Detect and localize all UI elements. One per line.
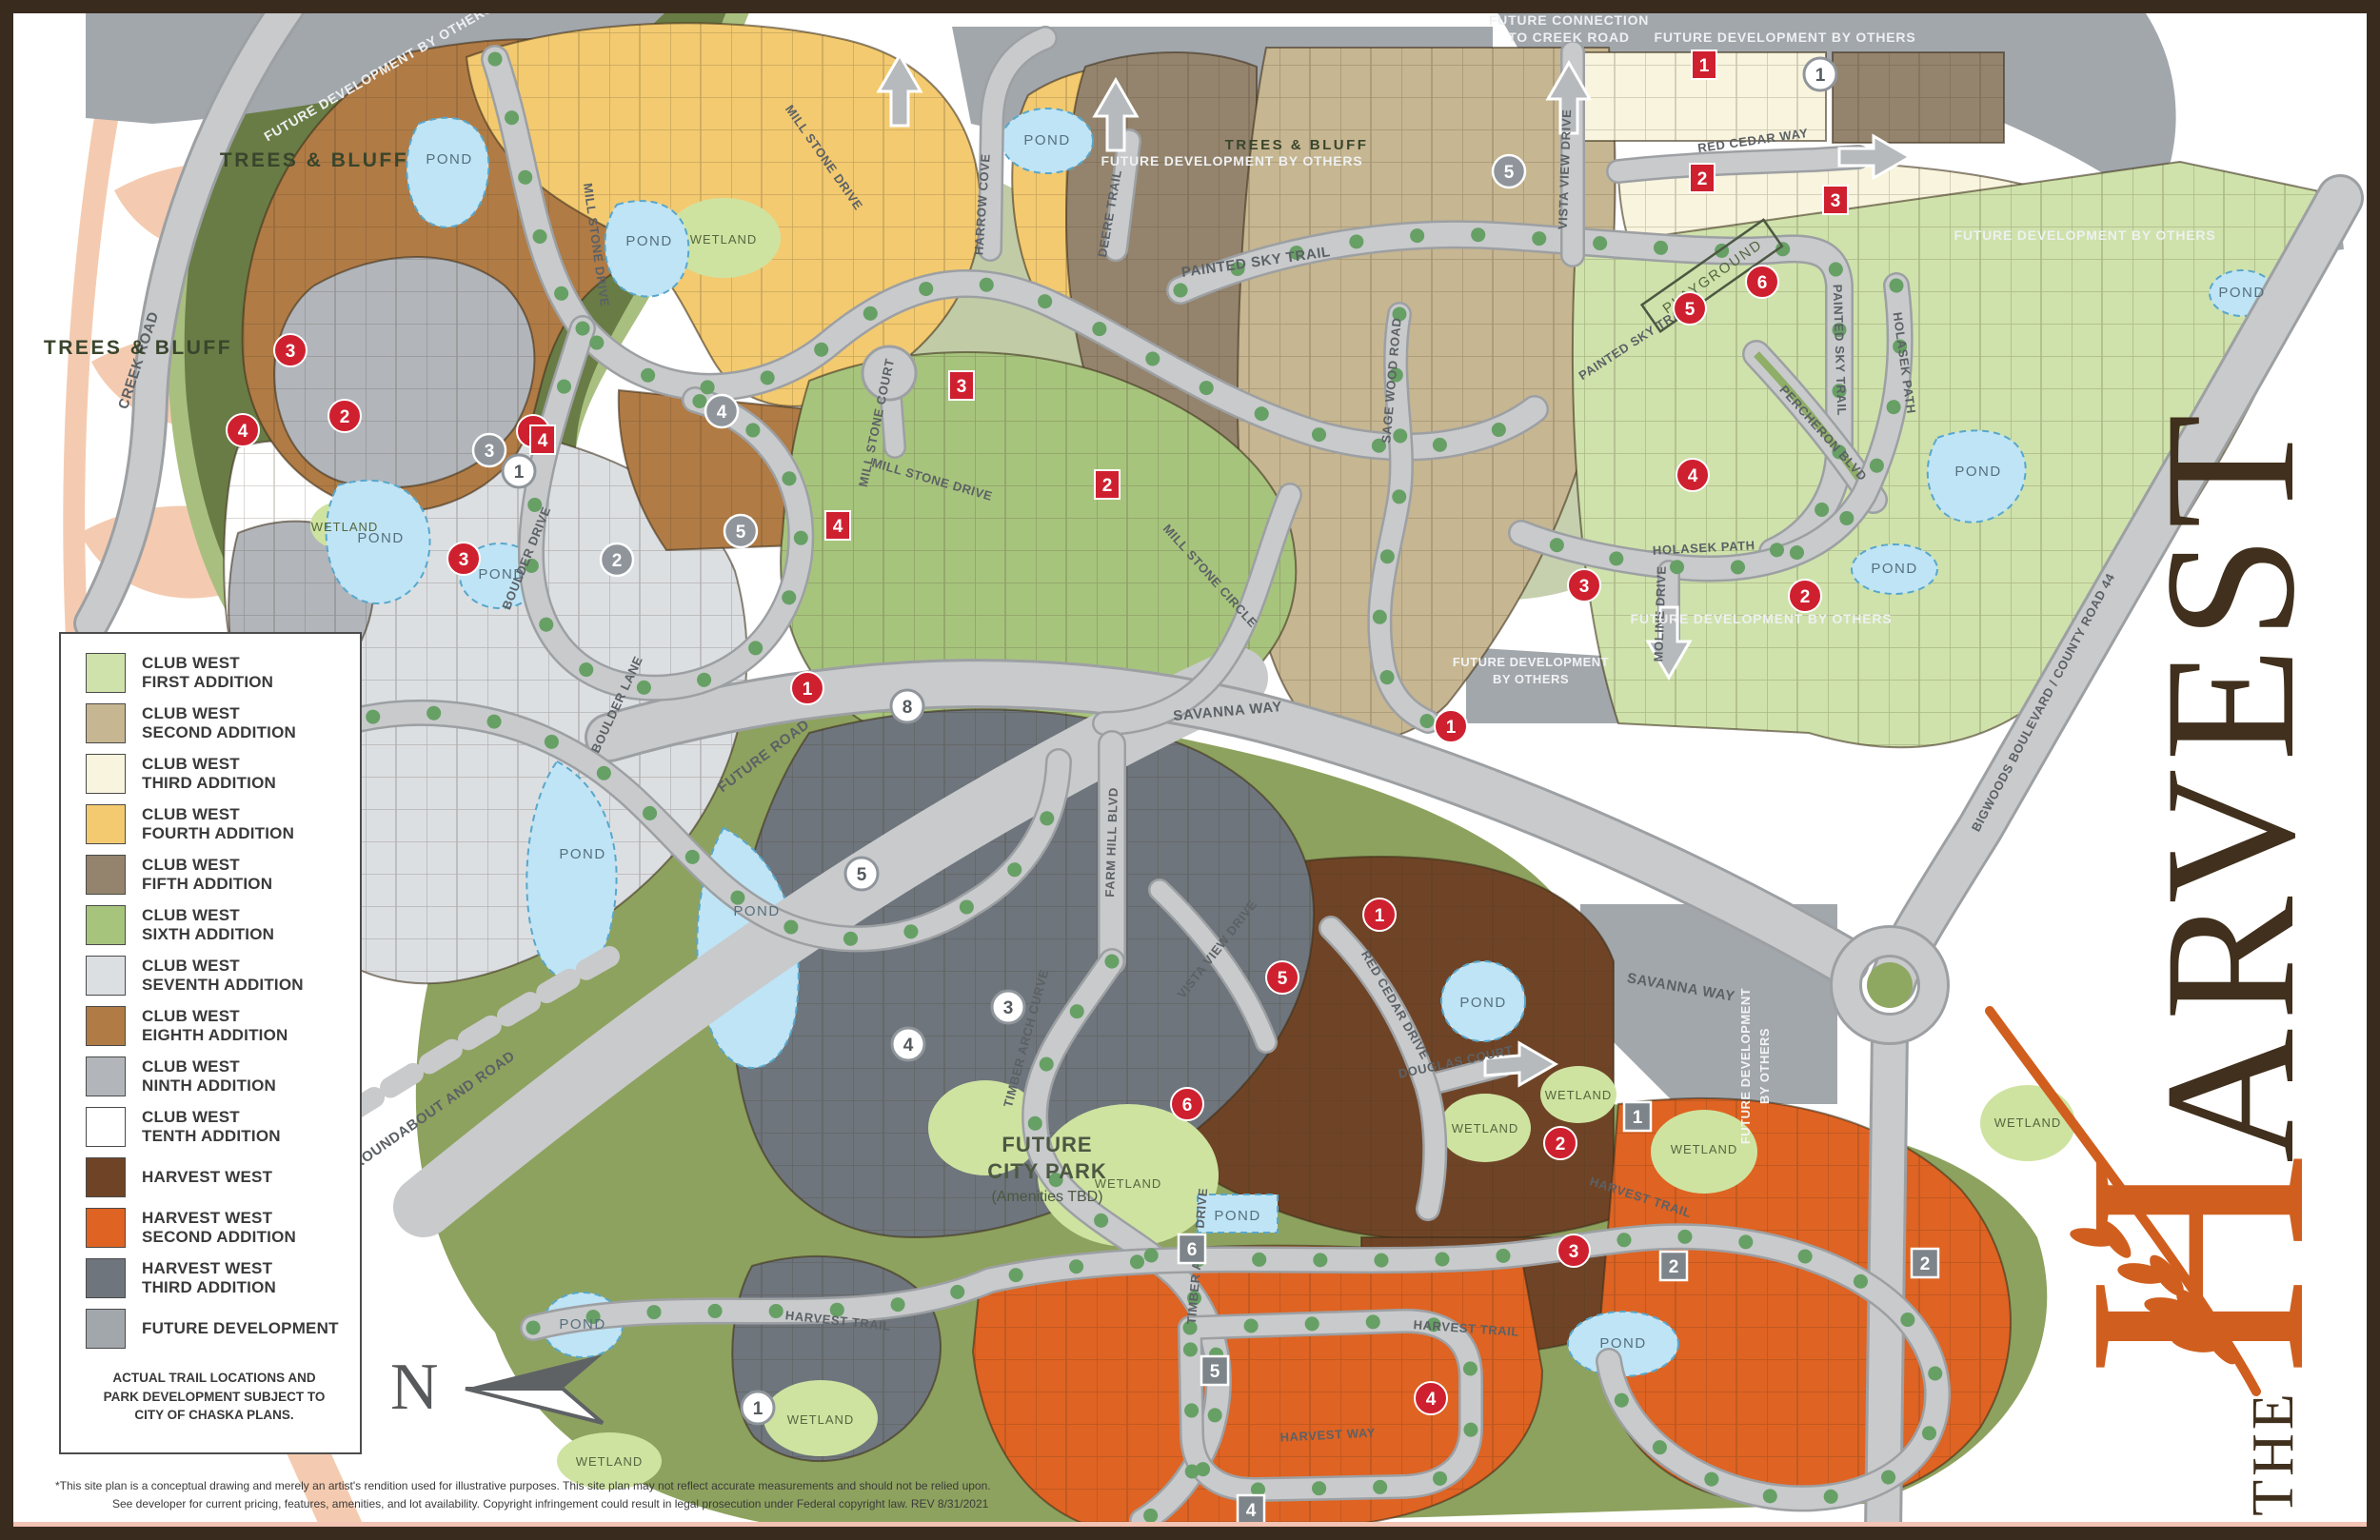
svg-text:BY OTHERS: BY OTHERS: [1757, 1028, 1772, 1104]
svg-text:3: 3: [1579, 577, 1590, 597]
area-label: WETLAND: [1994, 1116, 2062, 1130]
legend-swatch: [86, 1258, 126, 1298]
logo-the: THE: [2240, 1390, 2308, 1516]
legend-item: HARVEST WESTSECOND ADDITION: [86, 1208, 343, 1248]
area-label: POND: [357, 530, 404, 546]
svg-text:1: 1: [1446, 718, 1457, 738]
svg-text:1: 1: [1375, 906, 1385, 926]
area-label: TREES & BLUFF: [44, 337, 232, 359]
north-arrow: N: [390, 1350, 605, 1426]
legend-swatch: [86, 1056, 126, 1096]
svg-text:3: 3: [957, 377, 967, 397]
area-label: FUTURE DEVELOPMENT BY OTHERS: [1631, 611, 1893, 626]
svg-text:5: 5: [1278, 969, 1288, 989]
svg-text:4: 4: [1246, 1501, 1257, 1521]
legend-swatch: [86, 855, 126, 895]
svg-text:5: 5: [736, 523, 746, 543]
svg-text:3: 3: [286, 342, 296, 362]
disclaimer-line2: See developer for current pricing, featu…: [55, 1495, 1064, 1513]
svg-text:6: 6: [1182, 1096, 1193, 1116]
svg-text:2: 2: [1697, 169, 1708, 189]
legend-item: CLUB WESTSEVENTH ADDITION: [86, 956, 343, 996]
legend-item: CLUB WESTSIXTH ADDITION: [86, 905, 343, 945]
legend-swatch: [86, 804, 126, 844]
legend: CLUB WESTFIRST ADDITION CLUB WESTSECOND …: [59, 632, 362, 1454]
area-label: WETLAND: [787, 1412, 855, 1427]
legend-item: FUTURE DEVELOPMENT: [86, 1309, 343, 1349]
legend-note: ACTUAL TRAIL LOCATIONS AND PARK DEVELOPM…: [86, 1369, 343, 1425]
svg-text:1: 1: [514, 463, 525, 483]
area-label: POND: [1023, 132, 1070, 148]
bottom-accent-line: [13, 1522, 2367, 1527]
svg-text:3: 3: [1569, 1242, 1579, 1262]
legend-item: CLUB WESTFIRST ADDITION: [86, 653, 343, 693]
svg-text:1: 1: [803, 680, 813, 700]
svg-text:1: 1: [1815, 66, 1826, 86]
area-label: WETLAND: [576, 1454, 644, 1469]
svg-text:4: 4: [238, 422, 248, 442]
svg-text:4: 4: [833, 517, 843, 537]
svg-text:6: 6: [1187, 1240, 1198, 1260]
svg-text:3: 3: [459, 550, 469, 570]
svg-text:8: 8: [902, 698, 913, 718]
area-label: FUTURE: [1002, 1133, 1092, 1156]
svg-text:4: 4: [903, 1036, 914, 1056]
area-label: TO CREEK ROAD: [1508, 30, 1630, 45]
legend-item: CLUB WESTFIFTH ADDITION: [86, 855, 343, 895]
legend-item: CLUB WESTFOURTH ADDITION: [86, 804, 343, 844]
north-label: N: [390, 1350, 439, 1426]
area-label: POND: [2218, 285, 2265, 301]
area-label: TREES & BLUFF: [220, 149, 408, 171]
svg-text:4: 4: [1688, 466, 1698, 486]
area-label: FUTURE DEVELOPMENT BY OTHERS: [1954, 227, 2216, 243]
legend-item: CLUB WESTNINTH ADDITION: [86, 1056, 343, 1096]
area-label: POND: [1599, 1335, 1646, 1352]
area-label: WETLAND: [1545, 1088, 1613, 1102]
logo-inner: THE H ARVEST: [2123, 409, 2370, 1513]
area-label: FUTURE DEVELOPMENT: [1453, 655, 1609, 669]
svg-text:FUTURE DEVELOPMENT: FUTURE DEVELOPMENT: [1738, 988, 1753, 1144]
legend-swatch: [86, 653, 126, 693]
legend-swatch: [86, 905, 126, 945]
svg-text:5: 5: [857, 865, 867, 885]
svg-text:2: 2: [1800, 587, 1811, 607]
area-label: TREES & BLUFF: [1225, 137, 1369, 153]
north-arrow-icon: [462, 1351, 605, 1425]
disclaimer-line1: *This site plan is a conceptual drawing …: [55, 1477, 1064, 1495]
disclaimer: *This site plan is a conceptual drawing …: [55, 1477, 1064, 1512]
area-label: POND: [1954, 464, 2001, 480]
area-label: WETLAND: [690, 232, 758, 247]
svg-text:4: 4: [1426, 1390, 1437, 1410]
svg-text:4: 4: [717, 403, 727, 423]
legend-swatch: [86, 703, 126, 743]
svg-text:2: 2: [1556, 1135, 1566, 1155]
svg-text:2: 2: [340, 407, 350, 427]
legend-item: CLUB WESTEIGHTH ADDITION: [86, 1006, 343, 1046]
area-label: FUTURE DEVELOPMENT BY OTHERS: [1101, 153, 1363, 168]
svg-text:1: 1: [753, 1399, 764, 1419]
legend-swatch: [86, 1208, 126, 1248]
legend-swatch: [86, 1309, 126, 1349]
svg-text:5: 5: [1685, 300, 1696, 320]
legend-swatch: [86, 1006, 126, 1046]
area-label: POND: [733, 903, 780, 919]
area-label: POND: [625, 233, 672, 249]
svg-text:2: 2: [1102, 476, 1113, 496]
area-label: WETLAND: [1671, 1142, 1738, 1156]
site-plan-page: CREEK ROAD MILL STONE DRIVE MILL STONE D…: [0, 0, 2380, 1540]
svg-text:3: 3: [1831, 191, 1841, 211]
logo-wordmark: ARVEST: [2123, 406, 2337, 1163]
svg-text:3: 3: [1003, 998, 1014, 1018]
area-label: POND: [478, 566, 525, 582]
svg-text:2: 2: [1920, 1254, 1931, 1274]
svg-text:5: 5: [1504, 163, 1515, 183]
legend-item: CLUB WESTTENTH ADDITION: [86, 1107, 343, 1147]
legend-item: CLUB WESTTHIRD ADDITION: [86, 754, 343, 794]
area-label: CITY PARK: [987, 1159, 1107, 1183]
area-label: POND: [1214, 1208, 1260, 1224]
area-label: BY OTHERS: [1493, 672, 1569, 686]
svg-text:2: 2: [1669, 1257, 1679, 1277]
area-label: POND: [559, 846, 605, 862]
svg-text:6: 6: [1757, 273, 1768, 293]
logo: THE H ARVEST: [2123, 409, 2370, 1513]
area-label: WETLAND: [1452, 1121, 1519, 1135]
legend-swatch: [86, 1157, 126, 1197]
area-label: FUTURE DEVELOPMENT BY OTHERS: [1655, 30, 1916, 45]
area-label: POND: [559, 1316, 605, 1333]
legend-swatch: [86, 1107, 126, 1147]
area-label: POND: [426, 151, 472, 168]
area-label: POND: [1459, 995, 1506, 1011]
svg-text:1: 1: [1699, 56, 1710, 76]
area-label: (Amenities TBD): [991, 1189, 1102, 1205]
svg-text:1: 1: [1633, 1108, 1643, 1128]
legend-swatch: [86, 956, 126, 996]
legend-swatch: [86, 754, 126, 794]
svg-text:2: 2: [612, 551, 623, 571]
legend-item: HARVEST WESTTHIRD ADDITION: [86, 1258, 343, 1298]
svg-text:3: 3: [485, 442, 495, 462]
svg-text:5: 5: [1210, 1362, 1220, 1382]
area-label: FUTURE CONNECTION: [1489, 12, 1649, 28]
area-label: POND: [1871, 561, 1917, 577]
legend-item: HARVEST WEST: [86, 1157, 343, 1197]
legend-item: CLUB WESTSECOND ADDITION: [86, 703, 343, 743]
svg-text:4: 4: [538, 431, 548, 451]
